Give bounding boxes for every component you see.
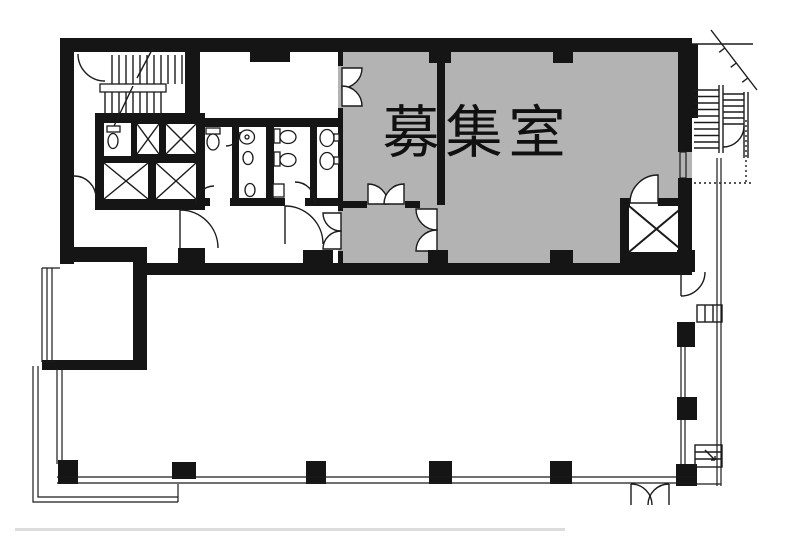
- entrance-double-door: [631, 484, 669, 505]
- door-swing: [74, 176, 96, 198]
- door-swing: [78, 54, 105, 81]
- toilet-fixture: [274, 152, 280, 166]
- window-bay: [42, 268, 60, 362]
- scan-artifact-line: [15, 528, 565, 531]
- column: [303, 250, 333, 263]
- floor-plan-svg: 募集室: [0, 0, 787, 539]
- toilet-fixture: [280, 131, 296, 144]
- toilet-fixture: [107, 126, 120, 132]
- column: [429, 52, 451, 63]
- column: [58, 460, 78, 484]
- column: [250, 52, 290, 62]
- column: [429, 461, 452, 484]
- utility-sink: [273, 184, 284, 197]
- door-swing: [180, 210, 218, 248]
- exterior-steps: [681, 272, 722, 467]
- urinal-fixture: [243, 152, 253, 165]
- toilet-fixture: [207, 134, 219, 150]
- sink-fixture: [320, 153, 334, 170]
- double-door: [323, 231, 341, 249]
- vacant-room-label: 募集室: [383, 102, 572, 165]
- toilet-fixture: [280, 154, 296, 167]
- canopy-outline: [33, 366, 178, 502]
- toilet-fixture: [108, 134, 118, 149]
- stair-landing-rail: [100, 84, 166, 92]
- column: [550, 461, 572, 484]
- sink-fixture: [320, 130, 334, 147]
- door-swing: [681, 272, 705, 296]
- double-door: [323, 213, 341, 231]
- column: [428, 250, 448, 263]
- toilet-fixture: [274, 129, 280, 143]
- column: [553, 52, 573, 63]
- exterior-fire-escape: [694, 85, 752, 183]
- door-swing: [285, 206, 323, 244]
- column: [178, 248, 205, 263]
- roof-overhang-line: [692, 30, 757, 90]
- column: [550, 250, 573, 263]
- toilet-fixture: [206, 128, 220, 134]
- floor-plan-page: 募集室: [0, 0, 787, 539]
- column: [306, 461, 326, 484]
- urinal-fixture: [245, 184, 255, 197]
- elevator-core: [95, 113, 205, 210]
